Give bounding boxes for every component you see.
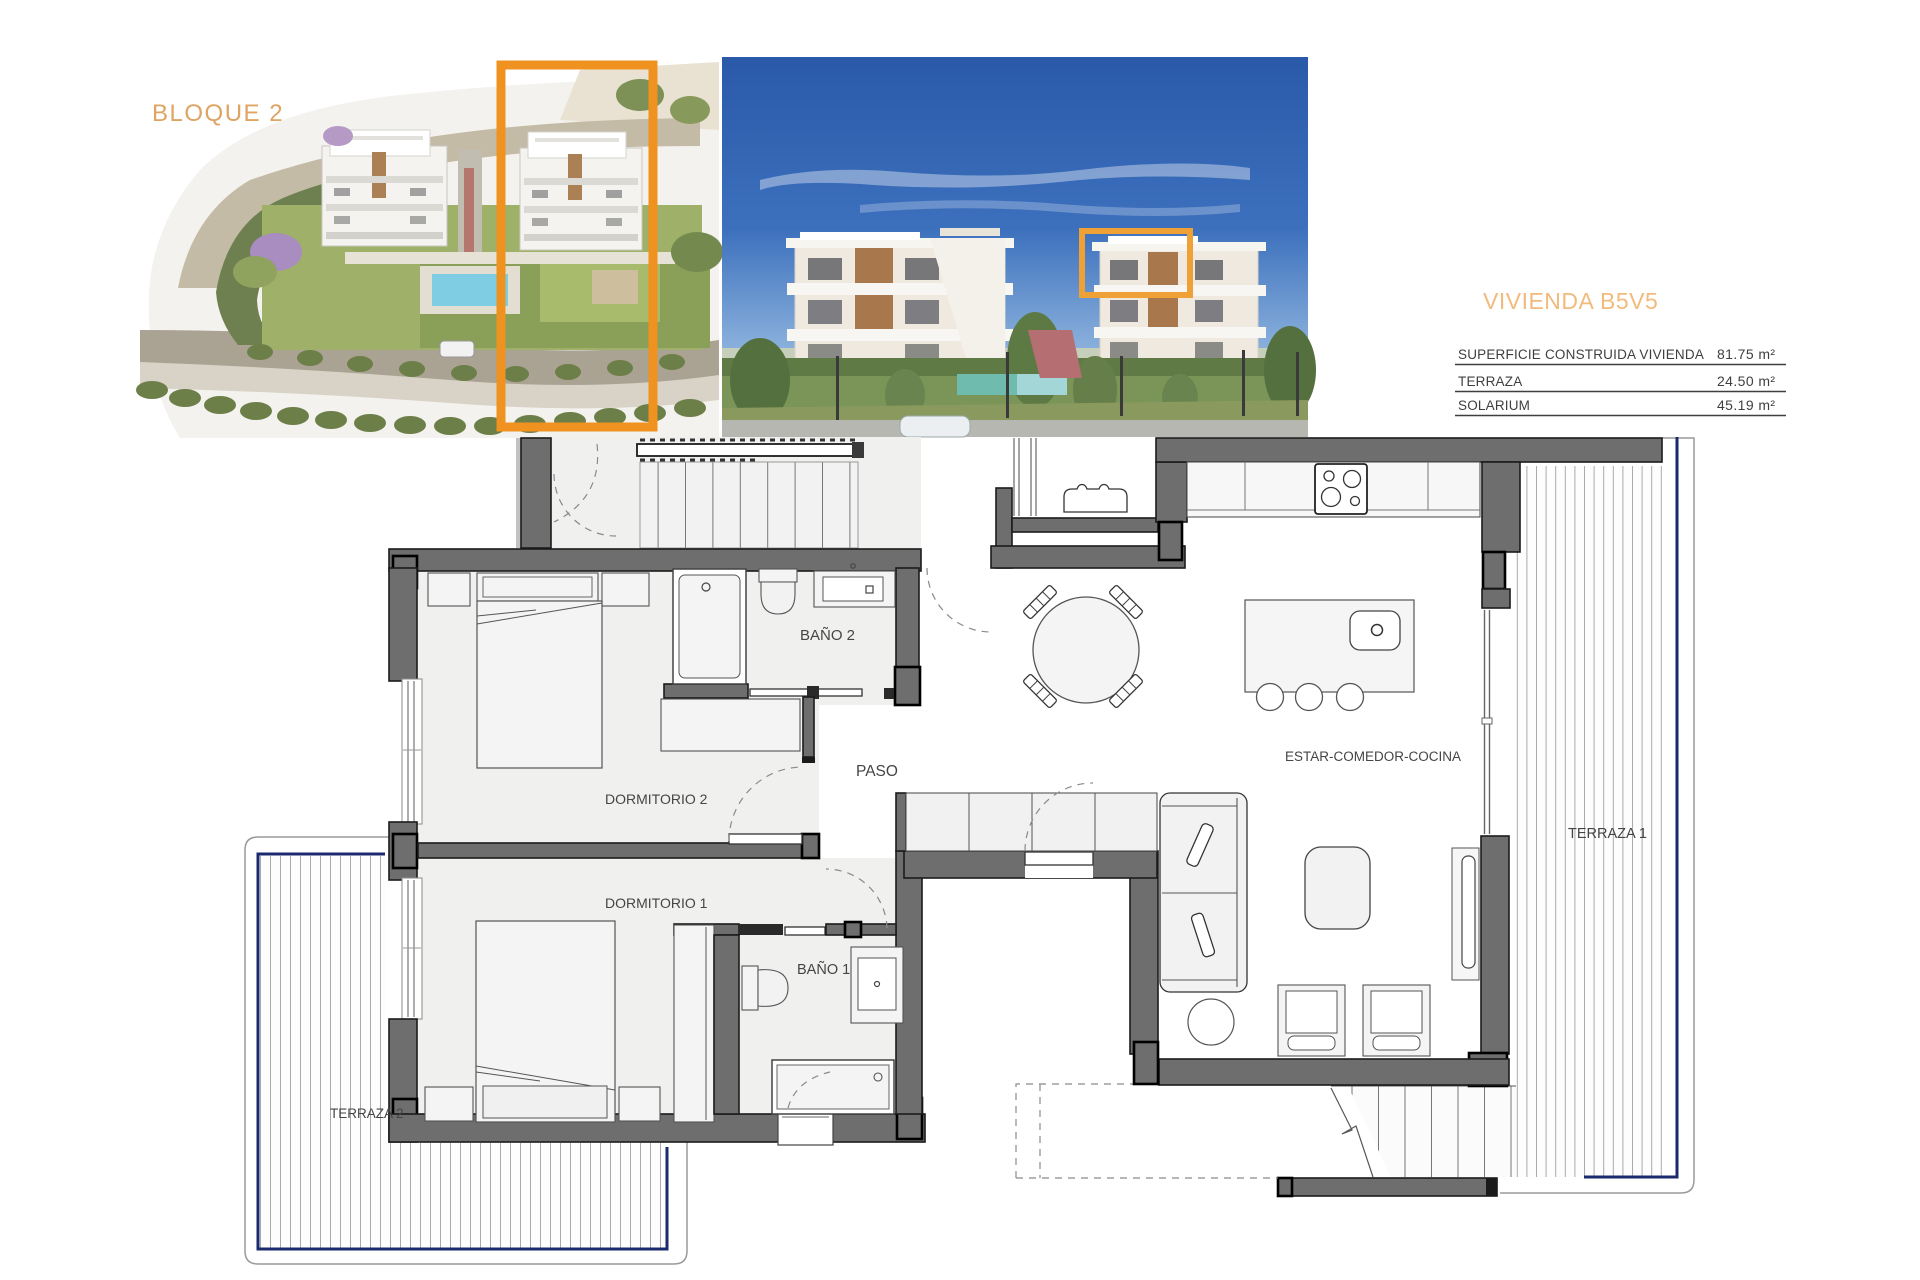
svg-text:BAÑO 1: BAÑO 1 bbox=[797, 961, 850, 978]
svg-text:SOLARIUM: SOLARIUM bbox=[1458, 398, 1530, 413]
svg-text:TERRAZA 1: TERRAZA 1 bbox=[1568, 826, 1647, 842]
svg-text:DORMITORIO 2: DORMITORIO 2 bbox=[605, 791, 708, 807]
svg-text:SUPERFICIE CONSTRUIDA VIVIENDA: SUPERFICIE CONSTRUIDA VIVIENDA bbox=[1458, 347, 1704, 362]
svg-text:TERRAZA: TERRAZA bbox=[1458, 374, 1522, 389]
svg-text:24.50 m²: 24.50 m² bbox=[1717, 373, 1775, 389]
svg-text:45.19 m²: 45.19 m² bbox=[1717, 397, 1775, 413]
svg-text:VIVIENDA B5V5: VIVIENDA B5V5 bbox=[1483, 288, 1658, 314]
svg-text:ESTAR-COMEDOR-COCINA: ESTAR-COMEDOR-COCINA bbox=[1285, 749, 1461, 764]
svg-text:BLOQUE 2: BLOQUE 2 bbox=[152, 100, 284, 127]
svg-text:81.75 m²: 81.75 m² bbox=[1717, 346, 1775, 362]
svg-text:DORMITORIO 1: DORMITORIO 1 bbox=[605, 895, 708, 911]
svg-text:TERRAZA 2: TERRAZA 2 bbox=[330, 1106, 404, 1121]
svg-text:BAÑO 2: BAÑO 2 bbox=[800, 627, 855, 644]
svg-text:PASO: PASO bbox=[856, 763, 898, 780]
